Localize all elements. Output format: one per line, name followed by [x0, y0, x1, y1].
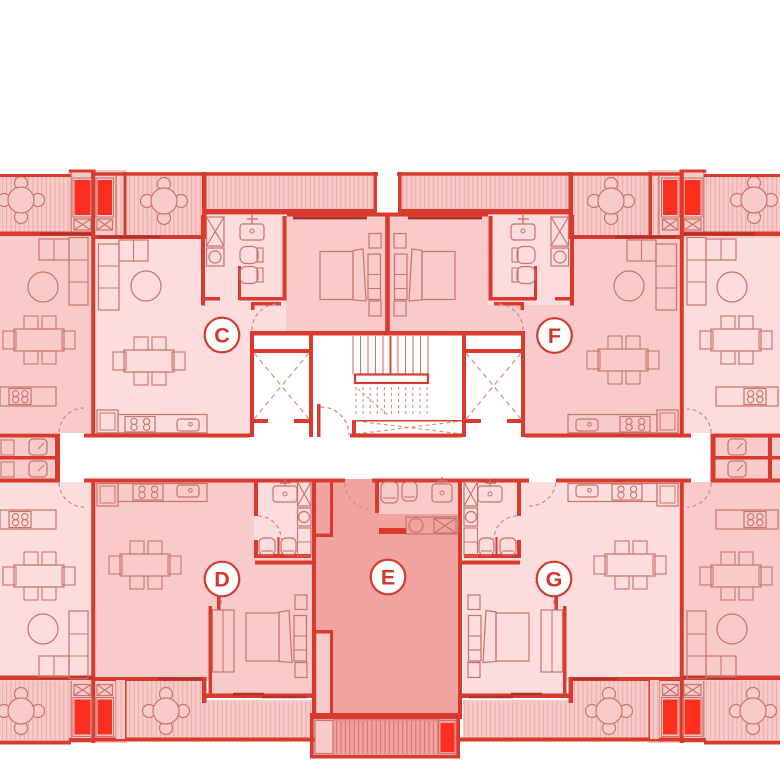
- svg-text:D: D: [214, 568, 230, 592]
- svg-text:F: F: [548, 324, 561, 348]
- svg-text:C: C: [214, 324, 230, 348]
- svg-text:E: E: [381, 566, 395, 590]
- svg-text:G: G: [546, 568, 563, 592]
